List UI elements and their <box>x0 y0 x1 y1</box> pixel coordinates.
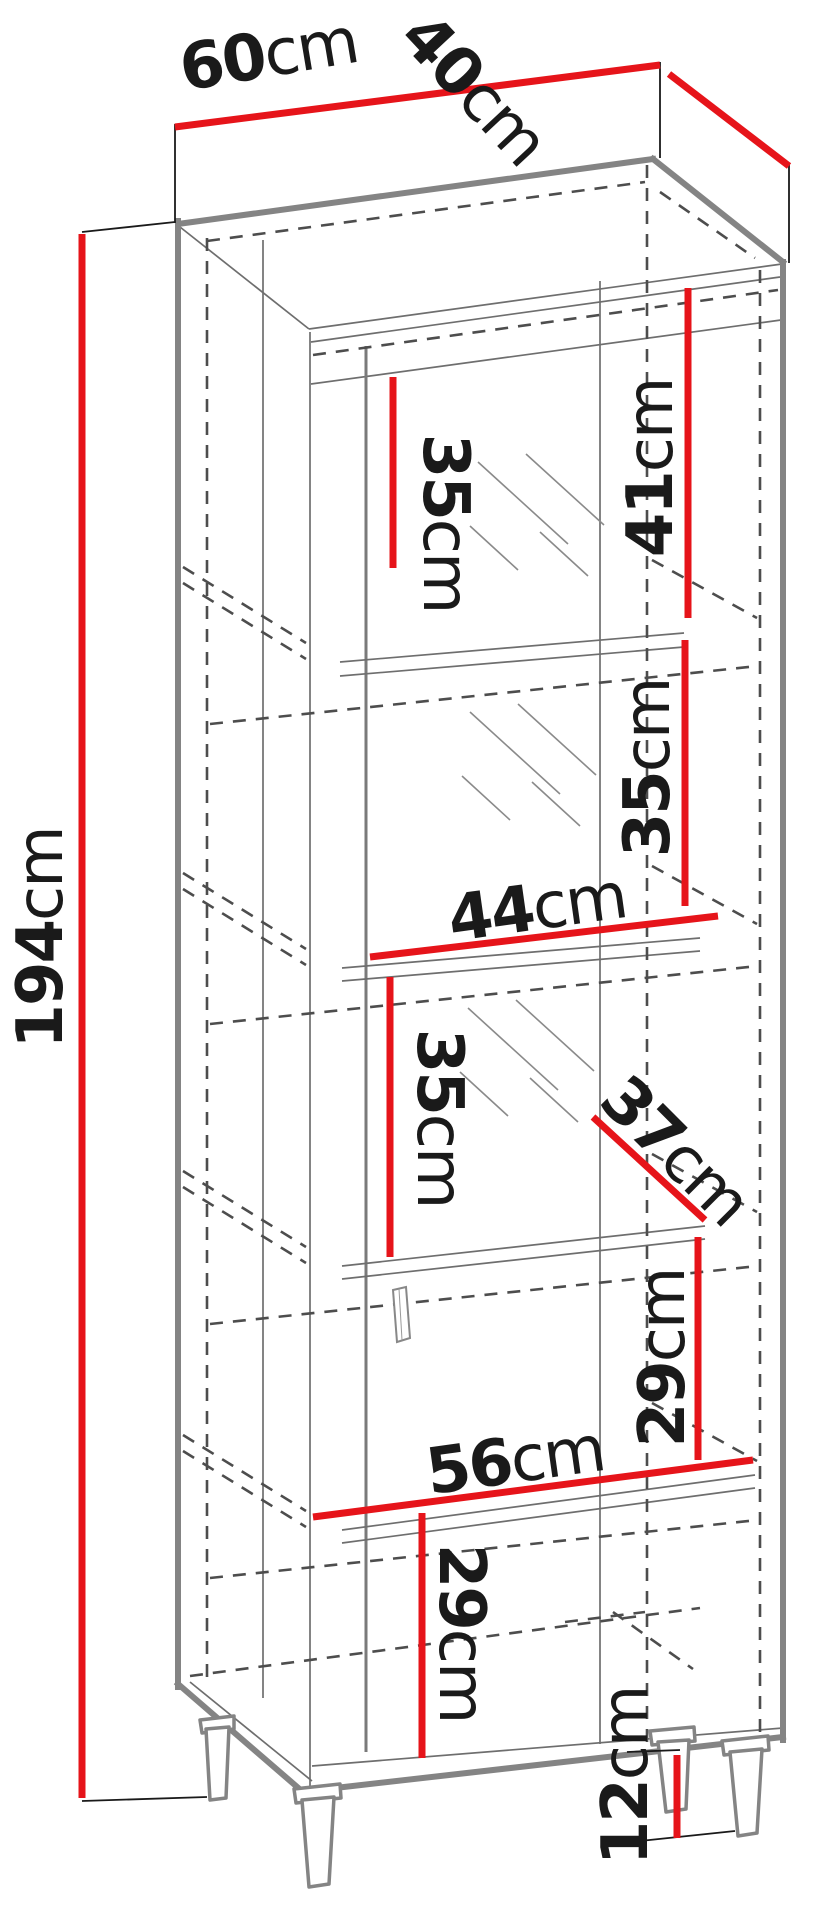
cabinet-dimension-diagram: 60cm 40cm 194cm 35cm 41cm 35cm 44cm 35cm… <box>0 0 833 1920</box>
label-width: 60cm <box>174 4 362 106</box>
leg-back-left-body <box>206 1727 229 1800</box>
page: { "title": "cabinet-dimension-diagram", … <box>0 0 833 1920</box>
label-shelf-lower: 35cm <box>402 1029 476 1208</box>
label-inner-width-upper: 44cm <box>444 859 631 957</box>
label-section-bottom: 29cm <box>424 1544 498 1723</box>
label-shelf-top: 35cm <box>408 434 482 613</box>
legs <box>200 1716 769 1887</box>
door-handle <box>393 1287 410 1342</box>
label-height: 194cm <box>4 827 78 1048</box>
dimension-line-depth-40 <box>669 74 789 166</box>
leg-front-right-body <box>730 1749 762 1836</box>
leg-front-left-body <box>302 1797 334 1887</box>
label-inner-width-lower: 56cm <box>422 1412 609 1510</box>
label-depth: 40cm <box>385 0 561 180</box>
label-section-right: 29cm <box>626 1269 700 1448</box>
dimension-labels: 60cm 40cm 194cm 35cm 41cm 35cm 44cm 35cm… <box>4 0 764 1865</box>
label-top-right-section: 41cm <box>614 379 688 558</box>
label-door-diagonal: 37cm <box>586 1062 765 1241</box>
label-shelf-middle: 35cm <box>611 679 685 858</box>
label-leg-height: 12cm <box>589 1687 663 1866</box>
